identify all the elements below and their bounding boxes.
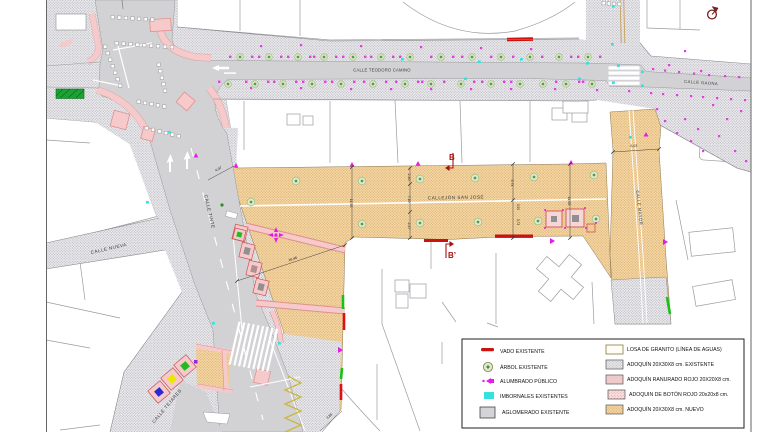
svg-text:11,05: 11,05 <box>567 197 571 206</box>
svg-text:ADOQUIN DE BOTÓN ROJO 20x20x8: ADOQUIN DE BOTÓN ROJO 20x20x8 cm. <box>629 391 728 398</box>
svg-text:LOSA DE GRANITO (LÍNEA DE AGUA: LOSA DE GRANITO (LÍNEA DE AGUAS) <box>627 346 722 353</box>
svg-text:CALLEJÓN SAN JOSÉ: CALLEJÓN SAN JOSÉ <box>428 194 484 201</box>
svg-text:6,02: 6,02 <box>630 144 637 148</box>
svg-text:B: B <box>449 153 455 162</box>
svg-text:CALLE TEODORO CAMINO: CALLE TEODORO CAMINO <box>353 68 411 73</box>
svg-text:2,47: 2,47 <box>407 223 411 230</box>
svg-text:ADOQUÍN 20X30X8 cm. EXISTENTE: ADOQUÍN 20X30X8 cm. EXISTENTE <box>627 361 715 368</box>
svg-text:AGLOMERADO EXISTENTE: AGLOMERADO EXISTENTE <box>502 410 570 416</box>
svg-text:0,50: 0,50 <box>516 204 520 210</box>
svg-text:ADOQUÍN RANURADO ROJO 20X20X8: ADOQUÍN RANURADO ROJO 20X20X8 cm. <box>627 376 731 383</box>
svg-text:11,35: 11,35 <box>349 199 353 208</box>
svg-text:B’: B’ <box>448 251 456 260</box>
svg-text:3,73: 3,73 <box>516 219 520 225</box>
svg-text:5,74: 5,74 <box>510 180 514 187</box>
svg-text:7,10: 7,10 <box>407 196 411 203</box>
svg-text:2,40: 2,40 <box>407 174 411 181</box>
svg-text:IMBORNALES EXISTENTES: IMBORNALES EXISTENTES <box>500 394 568 400</box>
svg-text:ALUMBRADO PÚBLICO: ALUMBRADO PÚBLICO <box>500 378 557 385</box>
svg-text:ADOQUÍN 20X30X8 cm. NUEVO: ADOQUÍN 20X30X8 cm. NUEVO <box>627 406 704 413</box>
svg-text:VADO EXISTENTE: VADO EXISTENTE <box>500 349 545 355</box>
svg-text:ÁRBOL EXISTENTE: ÁRBOL EXISTENTE <box>500 364 548 371</box>
